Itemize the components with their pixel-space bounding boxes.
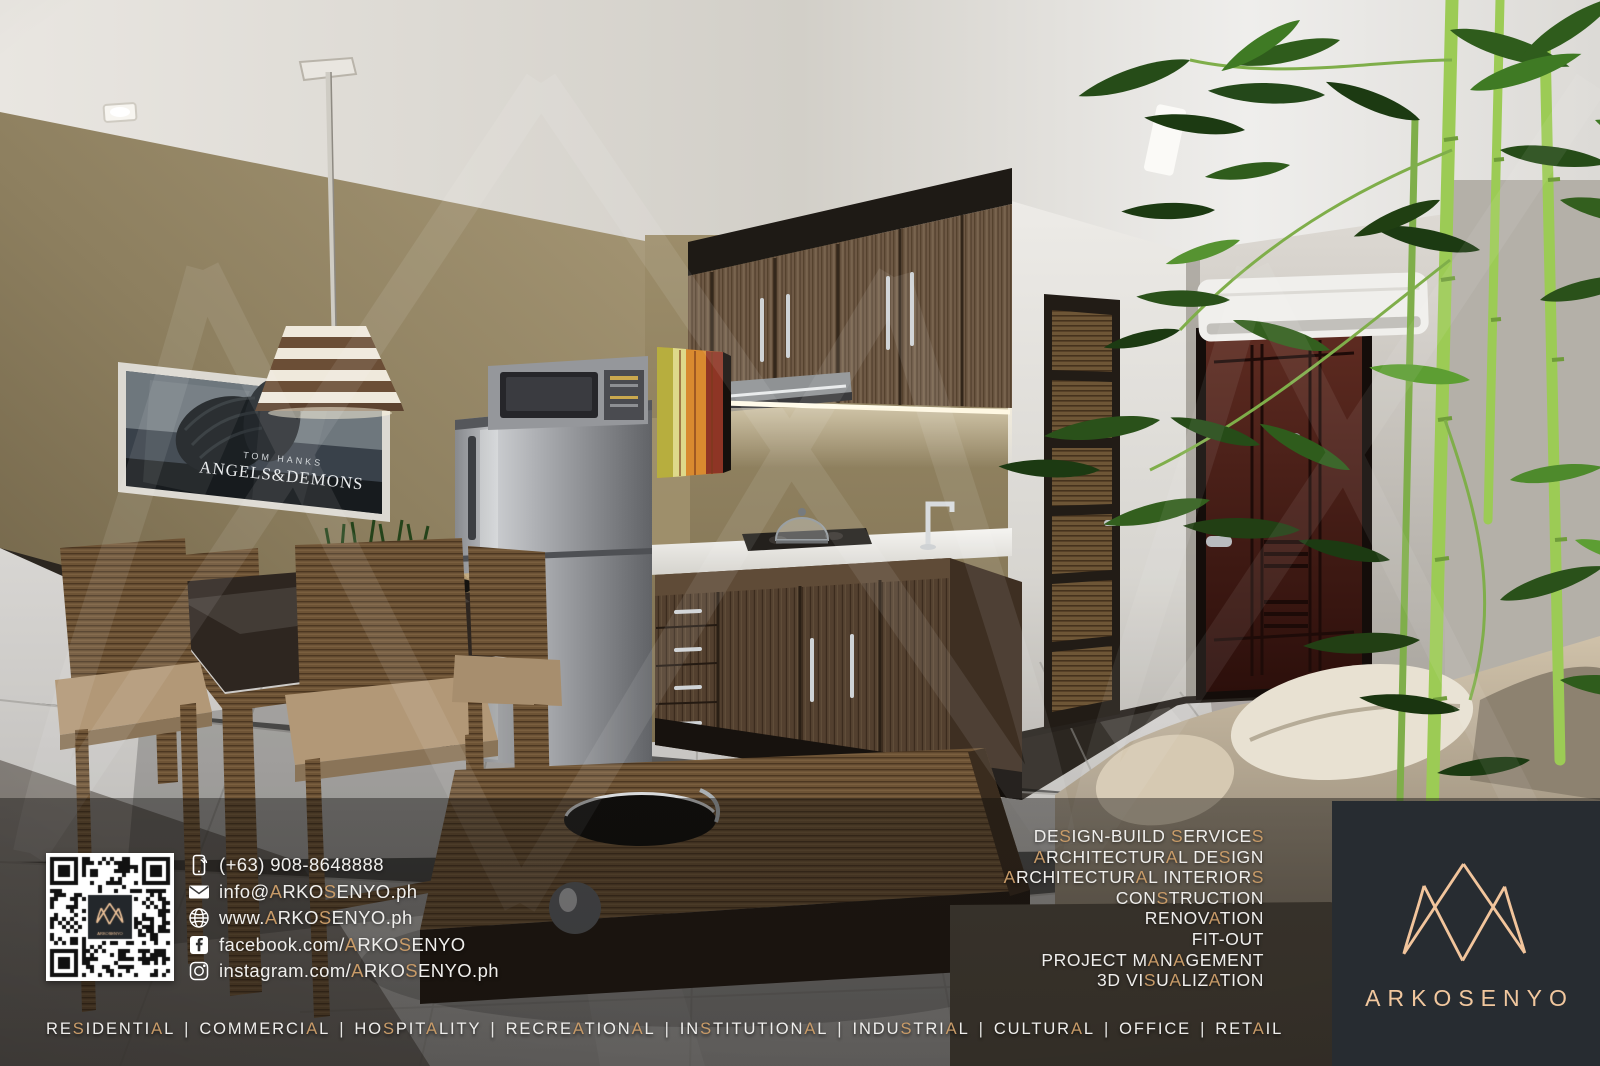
sector-label: RETAIL	[1215, 1020, 1283, 1038]
sector-separator: |	[979, 1020, 985, 1038]
website-url: www.ARKOSENYO.ph	[219, 907, 413, 929]
contact-lines: (+63) 908-8648888 info@ARKOSENYO.ph www.…	[188, 853, 499, 983]
sector-separator: |	[490, 1020, 496, 1038]
service-item: DESIGN-BUILD SERVICES	[1004, 826, 1264, 847]
sector-separator: |	[1200, 1020, 1206, 1038]
facebook-row: facebook.com/ARKOSENYO	[188, 934, 499, 956]
service-item: 3D VISUALIZATION	[1004, 970, 1264, 991]
sector-label: CULTURAL	[994, 1020, 1095, 1038]
sector-label: OFFICE	[1119, 1020, 1191, 1038]
phone-row: (+63) 908-8648888	[188, 854, 499, 876]
globe-icon	[188, 907, 210, 929]
services-list: DESIGN-BUILD SERVICESARCHITECTURAL DESIG…	[1004, 826, 1264, 991]
service-item: ARCHITECTURAL DESIGN	[1004, 847, 1264, 868]
email-row: info@ARKOSENYO.ph	[188, 881, 499, 903]
sector-label: RECREATIONAL	[506, 1020, 656, 1038]
sector-separator: |	[184, 1020, 190, 1038]
sector-label: COMMERCIAL	[199, 1020, 330, 1038]
qr-code	[46, 853, 174, 981]
door-handle	[1206, 536, 1232, 547]
sector-separator: |	[665, 1020, 671, 1038]
sector-label: RESIDENTIAL	[46, 1020, 175, 1038]
sector-bar: RESIDENTIAL|COMMERCIAL|HOSPITALITY|RECRE…	[46, 1020, 1283, 1039]
facebook-icon	[188, 934, 210, 956]
service-item: FIT-OUT	[1004, 929, 1264, 950]
service-item: ARCHITECTURAL INTERIORS	[1004, 867, 1264, 888]
sector-label: HOSPITALITY	[354, 1020, 481, 1038]
website-row: www.ARKOSENYO.ph	[188, 907, 499, 929]
sector-separator: |	[339, 1020, 345, 1038]
utility-door	[1044, 294, 1120, 729]
instagram-handle: instagram.com/ARKOSENYO.ph	[219, 960, 499, 982]
contact-block: (+63) 908-8648888 info@ARKOSENYO.ph www.…	[46, 853, 499, 983]
sector-label: INSTITUTIONAL	[680, 1020, 829, 1038]
marketing-image: TOM HANKS ANGELS&DEMONS	[0, 0, 1600, 1066]
phone-number: (+63) 908-8648888	[219, 854, 384, 876]
mail-icon	[188, 881, 210, 903]
brand-box: ARKOSENYO	[1332, 801, 1600, 1066]
instagram-icon	[188, 960, 210, 982]
facebook-handle: facebook.com/ARKOSENYO	[219, 934, 466, 956]
fridge-handle	[468, 436, 476, 540]
sector-label: INDUSTRIAL	[852, 1020, 969, 1038]
arkosenyo-logo-icon	[1390, 843, 1542, 969]
email-address: info@ARKOSENYO.ph	[219, 881, 417, 903]
brand-name: ARKOSENYO	[1358, 985, 1574, 1012]
service-item: PROJECT MANAGEMENT	[1004, 950, 1264, 971]
sector-separator: |	[837, 1020, 843, 1038]
sector-separator: |	[1104, 1020, 1110, 1038]
service-item: CONSTRUCTION	[1004, 888, 1264, 909]
service-item: RENOVATION	[1004, 908, 1264, 929]
instagram-row: instagram.com/ARKOSENYO.ph	[188, 960, 499, 982]
phone-icon	[188, 854, 210, 876]
